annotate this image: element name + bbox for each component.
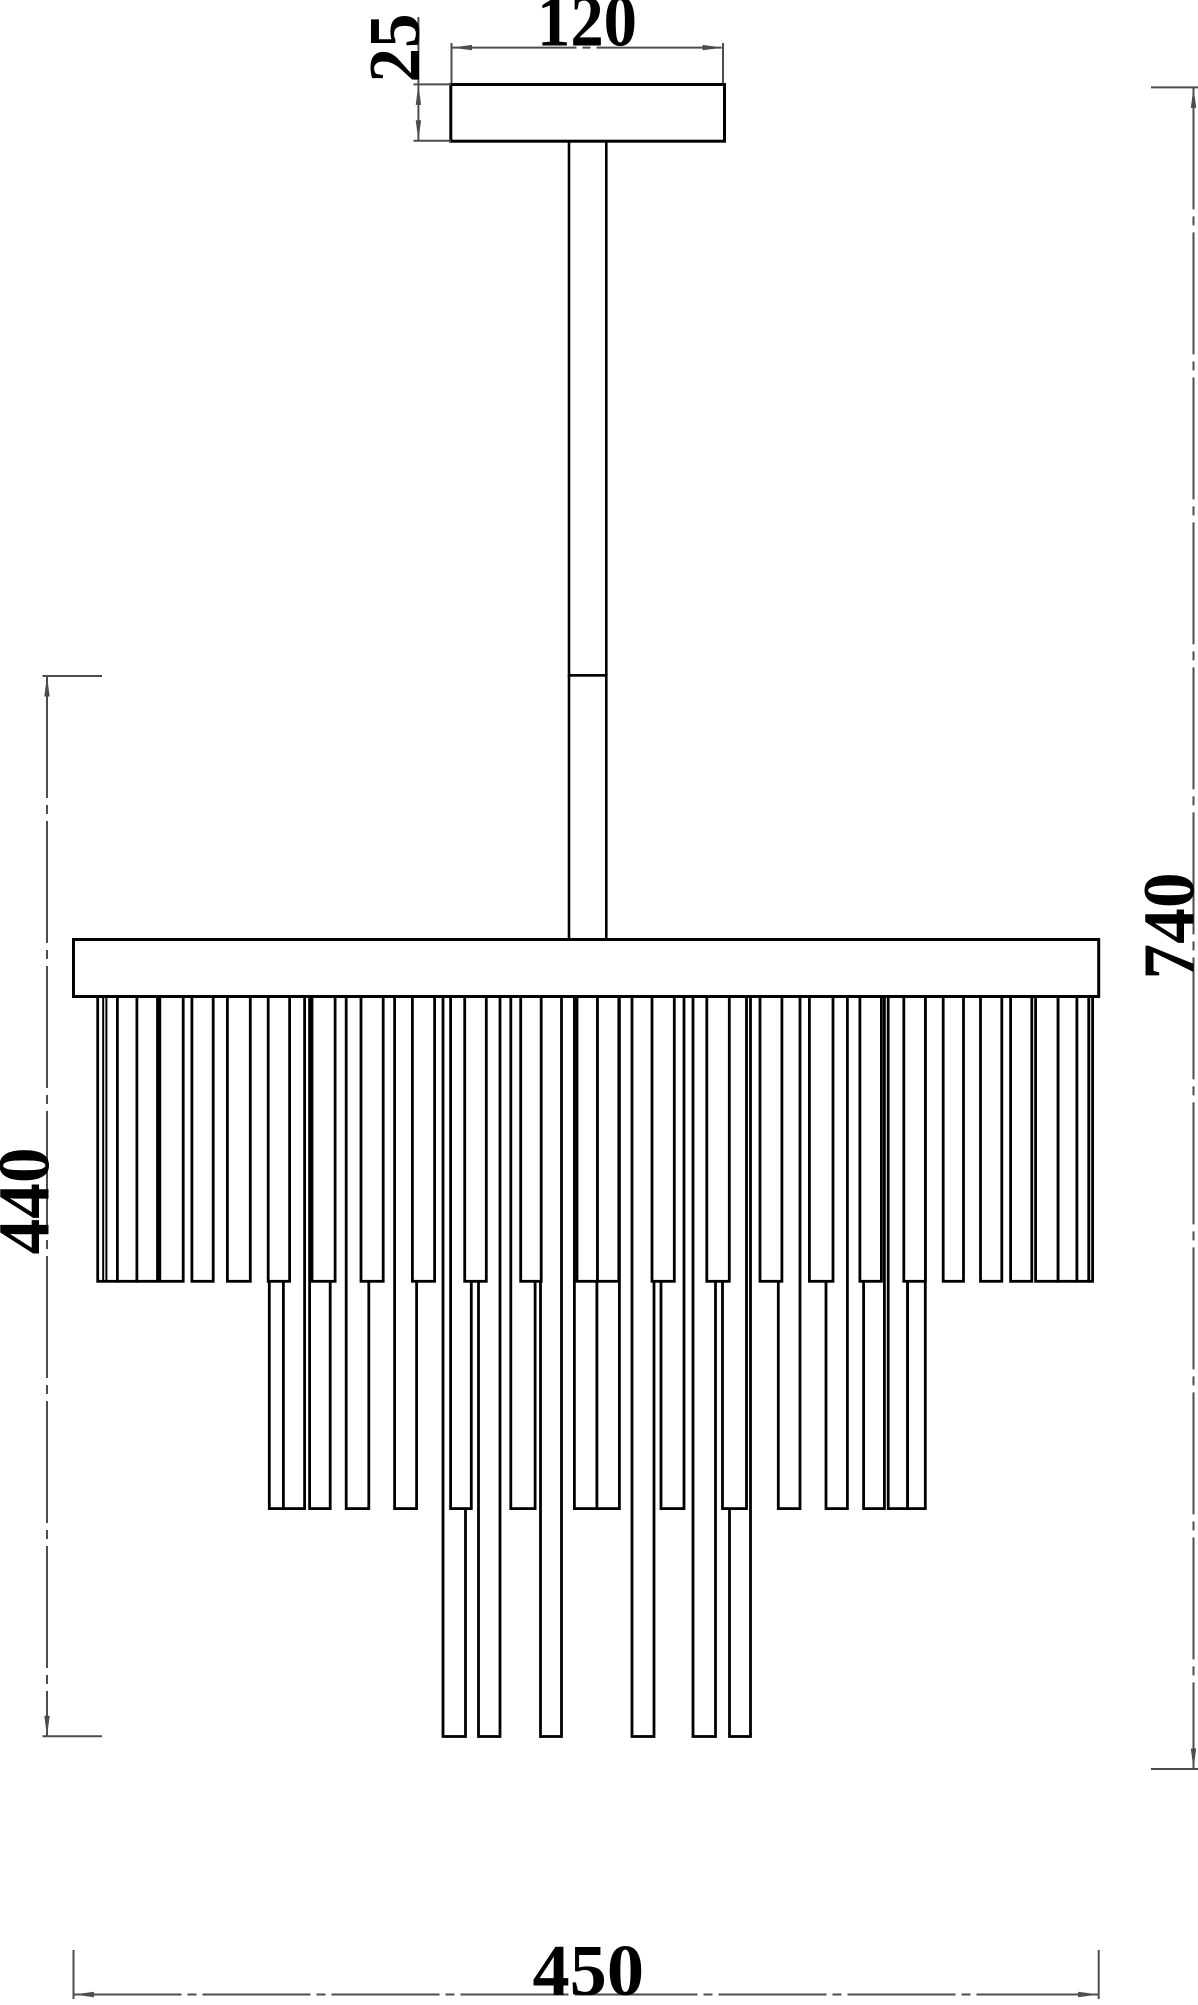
svg-text:25: 25 bbox=[354, 14, 435, 83]
svg-text:120: 120 bbox=[537, 0, 637, 62]
svg-text:450: 450 bbox=[533, 1930, 645, 2000]
svg-text:440: 440 bbox=[0, 1148, 65, 1255]
svg-text:740: 740 bbox=[1128, 873, 1198, 980]
